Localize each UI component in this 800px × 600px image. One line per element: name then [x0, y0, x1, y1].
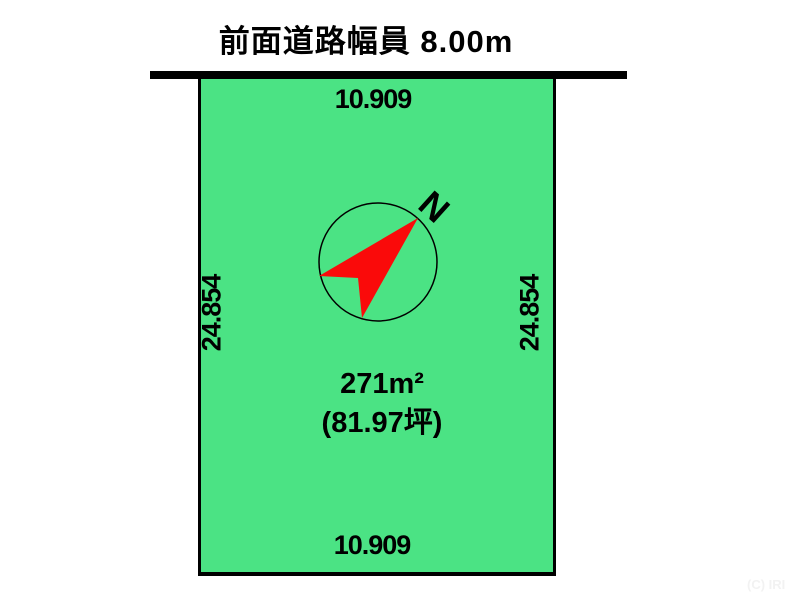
land-plot-diagram: 前面道路幅員 8.00m 10.909 10.909 24.854 24.854…	[0, 0, 800, 600]
dimension-left: 24.854	[197, 275, 228, 352]
north-label: N	[411, 183, 458, 231]
area-square-meters: 271m²	[322, 365, 443, 404]
area-tsubo: (81.97坪)	[322, 404, 443, 443]
area-label: 271m² (81.97坪)	[322, 365, 443, 443]
dimension-right: 24.854	[515, 275, 546, 352]
north-arrow-icon	[319, 218, 418, 318]
dimension-bottom: 10.909	[334, 530, 411, 561]
front-road-width-title: 前面道路幅員 8.00m	[219, 16, 514, 61]
compass: N	[300, 180, 470, 330]
copyright-text: (C) IRI	[747, 577, 785, 592]
front-road-line	[150, 71, 627, 79]
dimension-top: 10.909	[335, 84, 412, 115]
